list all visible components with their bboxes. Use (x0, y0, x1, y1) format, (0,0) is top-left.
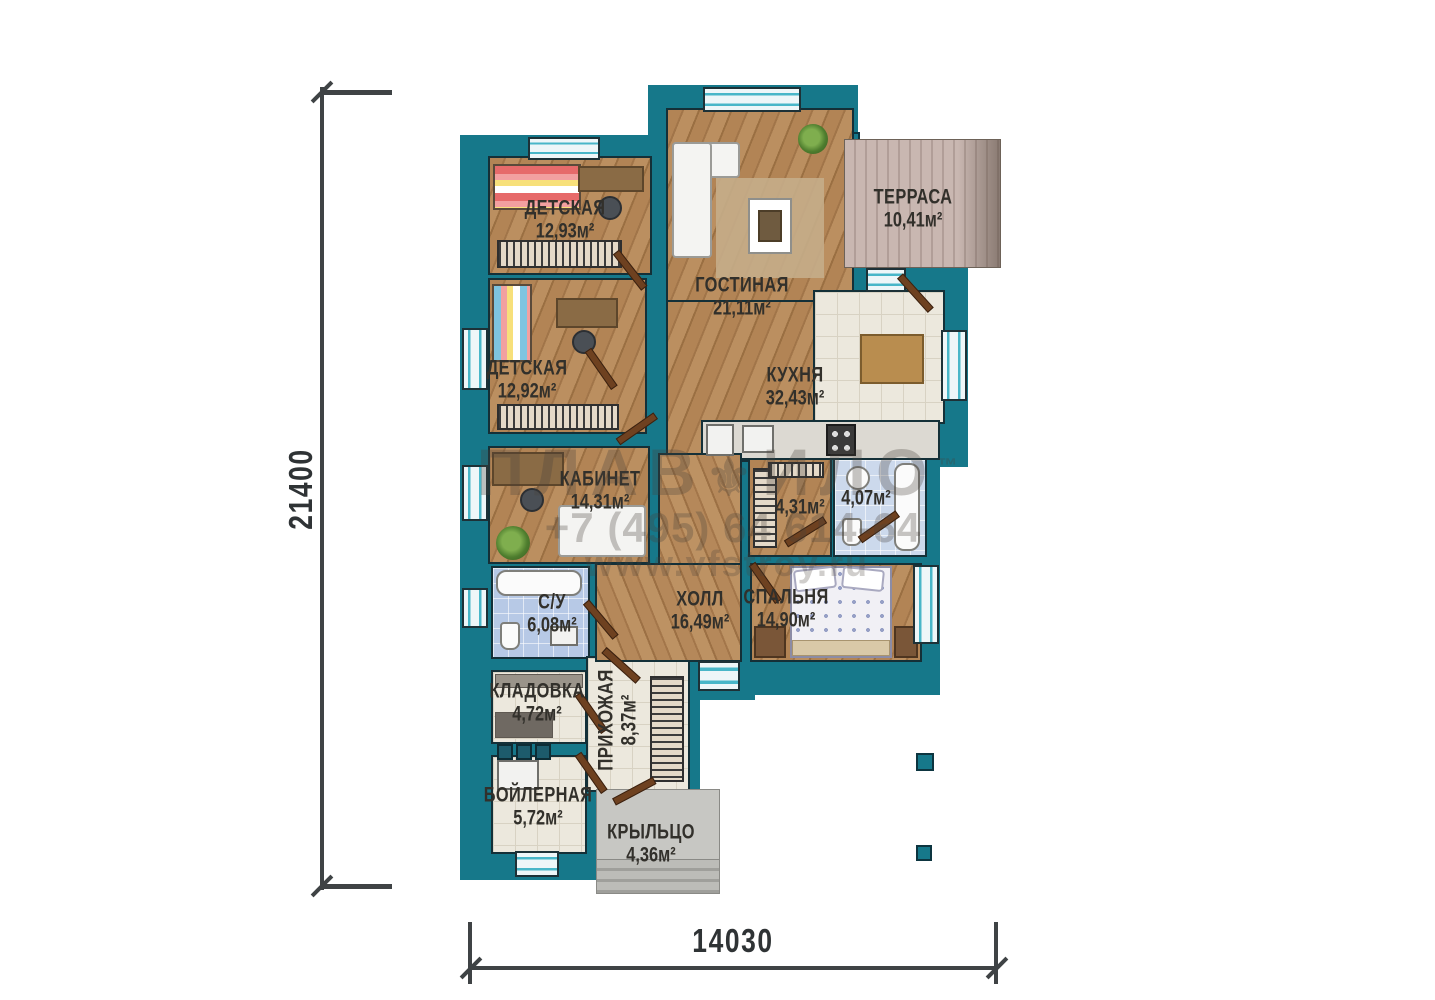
meter-box (497, 744, 513, 760)
floor-plan-page: ДЕТСКАЯ 12,93м² ДЕТСКАЯ 12,92м² ГОСТИНАЯ… (0, 0, 1435, 1000)
kitchen-sink (742, 425, 774, 453)
toilet (842, 518, 862, 546)
room-name: ПРИХОЖАЯ (595, 669, 618, 771)
stove (826, 424, 856, 456)
room-area: 8,37м² (618, 669, 641, 771)
room-name: КУХНЯ (766, 364, 825, 387)
room-area: 12,93м² (525, 220, 606, 243)
window (462, 465, 488, 521)
room-label-boiler: БОЙЛЕРНАЯ 5,72м² (484, 784, 593, 829)
freestanding-pillar (916, 845, 932, 861)
dimension-value-horizontal: 14030 (692, 922, 773, 960)
window (462, 328, 488, 390)
window (913, 565, 939, 644)
terrace-roof-shadow (958, 140, 1000, 267)
room-name: ДЕТСКАЯ (487, 357, 568, 380)
dimension-tick (468, 922, 472, 984)
freestanding-pillar (916, 753, 934, 771)
room-name: КРЫЛЬЦО (607, 821, 695, 844)
coffee-table (748, 198, 792, 254)
window (698, 661, 740, 691)
plant (798, 124, 828, 154)
room-area: 21,11м² (695, 297, 789, 320)
wardrobe (497, 240, 622, 268)
room-area: 4,07м² (841, 488, 890, 511)
dimension-tick (322, 90, 392, 95)
dimension-line-vertical (320, 87, 324, 890)
window (515, 851, 559, 877)
dimension-tick (994, 922, 998, 984)
room-label-bath: С/У 6,08м² (527, 591, 576, 636)
room-area: 14,90м² (743, 609, 828, 632)
room-name: ГОСТИНАЯ (695, 274, 789, 297)
room-label-office: КАБИНЕТ 14,31м² (560, 468, 641, 513)
room-label-bedroom: СПАЛЬНЯ 14,90м² (743, 586, 828, 631)
window (941, 330, 967, 401)
chair (520, 488, 544, 512)
room-area: 4,72м² (489, 703, 584, 726)
dining-table (860, 334, 924, 384)
room-label-living: ГОСТИНАЯ 21,11м² (695, 274, 789, 319)
fridge (706, 424, 734, 456)
room-area: 5,72м² (484, 807, 593, 830)
bathtub (894, 463, 920, 551)
blanket-fold (792, 640, 890, 656)
room-name: КАБИНЕТ (560, 468, 641, 491)
room-area: 32,43м² (766, 387, 825, 410)
room-area: 16,49м² (671, 611, 730, 634)
room-name: С/У (527, 591, 576, 614)
room-label-children-1: ДЕТСКАЯ 12,93м² (525, 197, 606, 242)
bed (492, 284, 532, 362)
sofa (672, 142, 712, 258)
room-name: ДЕТСКАЯ (525, 197, 606, 220)
room-area: 10,41м² (874, 209, 953, 232)
room-label-children-2: ДЕТСКАЯ 12,92м² (487, 357, 568, 402)
window (462, 588, 488, 628)
room-area: 4,31м² (775, 497, 824, 520)
kitchen-counter (703, 422, 938, 458)
room-label-hall: ХОЛЛ 16,49м² (671, 588, 730, 633)
desk (492, 452, 564, 486)
room-label-entrance: ПРИХОЖАЯ 8,37м² (595, 669, 640, 771)
room-label-porch: КРЫЛЬЦО 4,36м² (607, 821, 695, 866)
dimension-value-vertical: 21400 (282, 448, 320, 529)
wardrobe (497, 404, 619, 430)
room-area: 14,31м² (560, 491, 641, 514)
window (528, 137, 600, 160)
coffee-table-top (758, 210, 782, 242)
room-area: 4,36м² (607, 844, 695, 867)
toilet (500, 622, 520, 650)
desk (578, 166, 644, 192)
dimension-line-horizontal (468, 966, 998, 970)
desk (556, 298, 618, 328)
wardrobe (768, 462, 824, 478)
wardrobe (753, 468, 777, 548)
room-label-bath-2: 4,07м² (841, 488, 890, 511)
dimension-tick (322, 884, 392, 889)
meter-box (516, 744, 532, 760)
room-name: ХОЛЛ (671, 588, 730, 611)
room-name: ТЕРРАСА (874, 186, 953, 209)
meter-box (535, 744, 551, 760)
window (703, 87, 801, 112)
room-label-storage: КЛАДОВКА 4,72м² (489, 680, 584, 725)
room-name: БОЙЛЕРНАЯ (484, 784, 593, 807)
room-name: КЛАДОВКА (489, 680, 584, 703)
room-name: СПАЛЬНЯ (743, 586, 828, 609)
room-label-wardrobe: 4,31м² (775, 497, 824, 520)
room-label-kitchen: КУХНЯ 32,43м² (766, 364, 825, 409)
plant (496, 526, 530, 560)
room-label-terrace: ТЕРРАСА 10,41м² (874, 186, 953, 231)
room-area: 12,92м² (487, 380, 568, 403)
wardrobe (650, 676, 684, 782)
room-area: 6,08м² (527, 614, 576, 637)
pillow (841, 566, 885, 592)
